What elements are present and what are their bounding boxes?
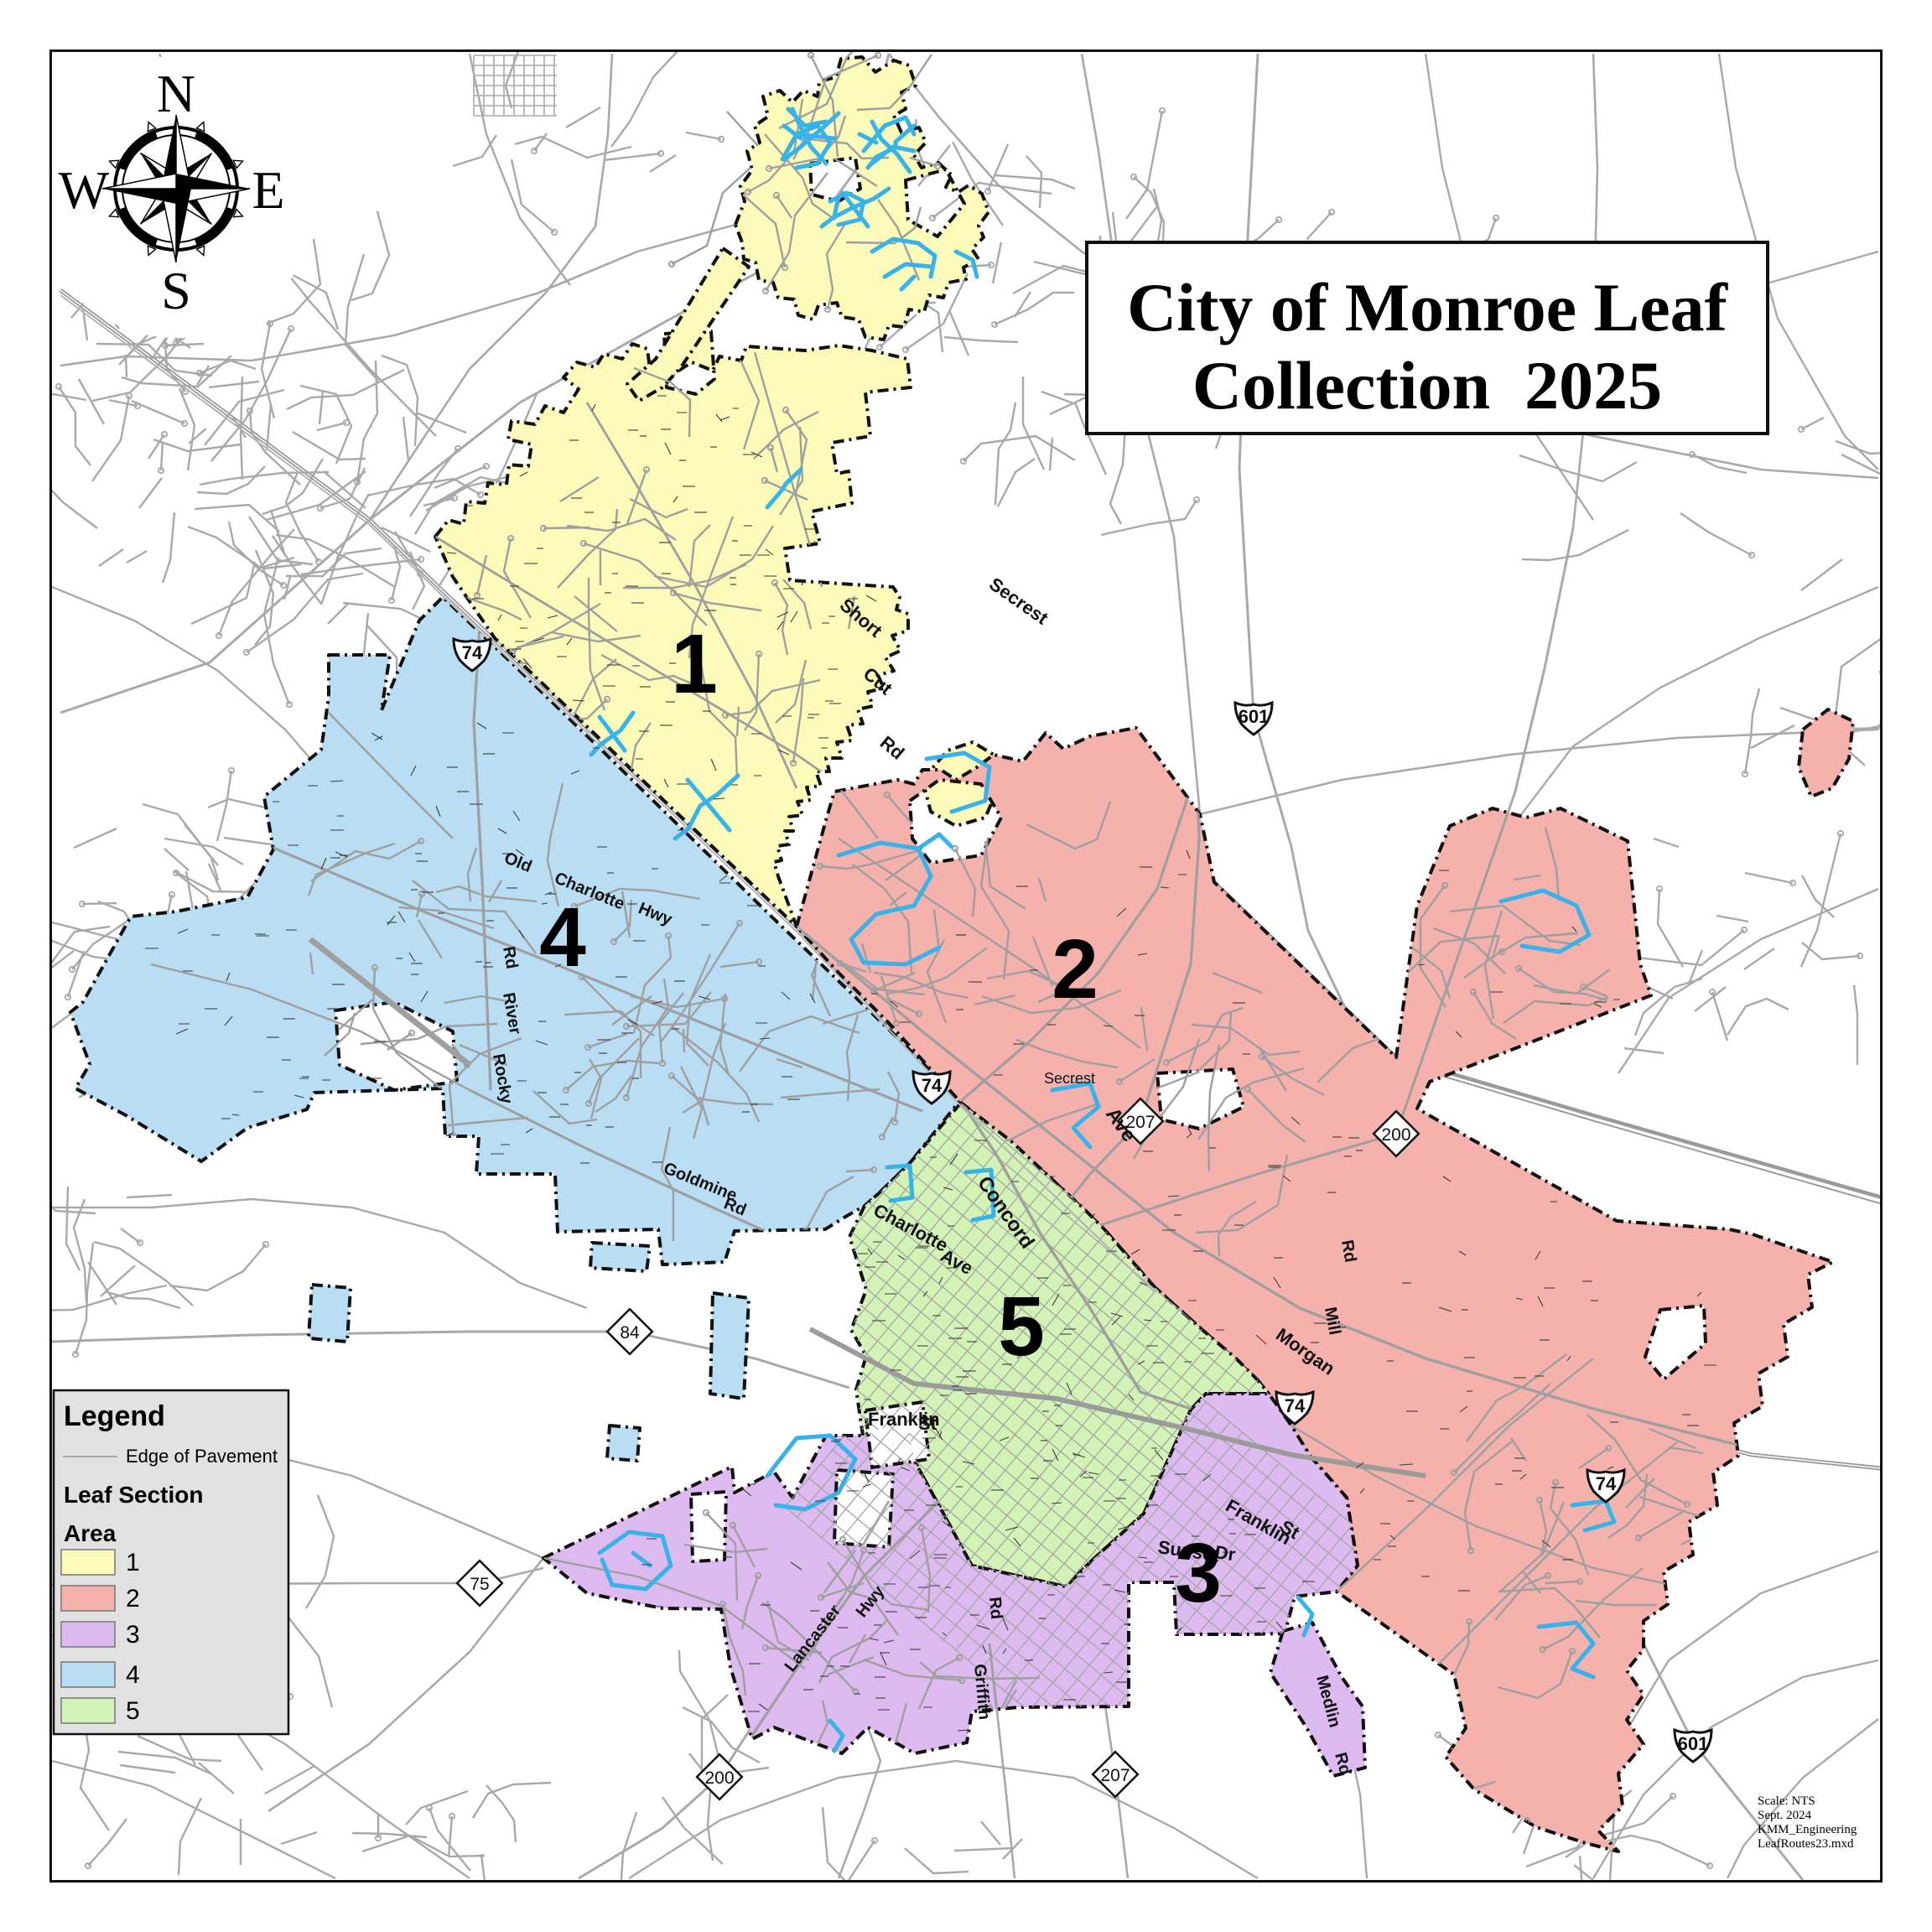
svg-text:Leaf Section: Leaf Section xyxy=(64,1482,203,1508)
svg-text:2: 2 xyxy=(126,1585,140,1613)
svg-text:St: St xyxy=(918,1413,937,1434)
svg-text:1: 1 xyxy=(126,1549,140,1576)
svg-text:74: 74 xyxy=(462,642,483,663)
svg-text:74: 74 xyxy=(1596,1473,1617,1494)
svg-text:75: 75 xyxy=(470,1575,489,1594)
svg-text:Edge of Pavement: Edge of Pavement xyxy=(126,1446,278,1467)
svg-text:207: 207 xyxy=(1100,1766,1130,1785)
svg-text:E: E xyxy=(252,160,284,220)
svg-text:Rd: Rd xyxy=(1337,1239,1359,1264)
svg-text:74: 74 xyxy=(922,1075,943,1096)
svg-text:Scale: NTS: Scale: NTS xyxy=(1758,1794,1815,1808)
svg-text:N: N xyxy=(157,64,195,123)
svg-text:City of Monroe Leaf: City of Monroe Leaf xyxy=(1127,269,1729,345)
svg-text:S: S xyxy=(161,261,191,320)
svg-text:1: 1 xyxy=(671,617,718,711)
svg-text:Area: Area xyxy=(64,1520,117,1546)
svg-text:Rd: Rd xyxy=(499,945,521,970)
svg-text:601: 601 xyxy=(1239,706,1270,727)
svg-text:74: 74 xyxy=(1285,1395,1306,1416)
svg-text:200: 200 xyxy=(1381,1125,1410,1145)
svg-text:3: 3 xyxy=(126,1621,140,1649)
svg-text:Secrest: Secrest xyxy=(1044,1070,1095,1087)
svg-text:Legend: Legend xyxy=(64,1400,165,1432)
svg-text:4: 4 xyxy=(539,891,586,984)
svg-text:4: 4 xyxy=(126,1661,140,1689)
svg-text:Collection 2025: Collection 2025 xyxy=(1192,347,1662,423)
svg-text:3: 3 xyxy=(1175,1526,1222,1620)
svg-text:601: 601 xyxy=(1678,1733,1709,1754)
svg-text:KMM_Engineering: KMM_Engineering xyxy=(1758,1823,1857,1836)
svg-text:Rd: Rd xyxy=(985,1597,1005,1620)
svg-text:5: 5 xyxy=(998,1280,1045,1374)
svg-text:W: W xyxy=(59,160,110,220)
svg-text:5: 5 xyxy=(126,1697,140,1725)
svg-text:200: 200 xyxy=(704,1768,734,1788)
svg-text:LeafRoutes23.mxd: LeafRoutes23.mxd xyxy=(1758,1837,1854,1851)
svg-text:84: 84 xyxy=(620,1323,640,1343)
svg-text:Sept. 2024: Sept. 2024 xyxy=(1758,1809,1812,1822)
svg-text:2: 2 xyxy=(1052,922,1098,1016)
